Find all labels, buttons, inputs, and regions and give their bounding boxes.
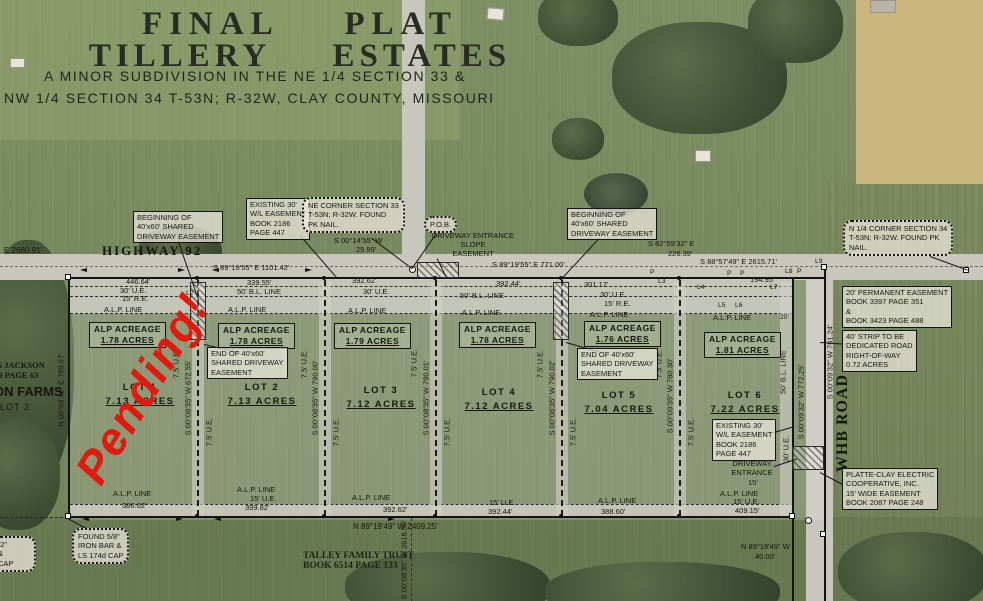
lot5-alp-acres: 1.76 ACRES xyxy=(589,334,656,345)
lot5-label: LOT 5 7.04 ACRES xyxy=(564,389,674,418)
dimension-arrow xyxy=(178,268,185,272)
callout-line: 40' STRIP TO BE xyxy=(846,332,913,341)
top-bearing-2: S 89°19'55" E 771.00' xyxy=(492,261,565,270)
road-strip-bottom-distance: 40.00' xyxy=(755,553,775,562)
alp-line-label: A.L.P. LINE xyxy=(348,307,386,316)
callout-line: DRIVEWAY EASEMENT xyxy=(571,229,653,238)
callout-line: RIGHT-OF-WAY xyxy=(846,351,913,360)
ue75-label: 7.5' U.E. xyxy=(443,418,452,447)
callout-line: EASEMENT xyxy=(581,369,654,378)
line-tag-l7: L7 xyxy=(770,284,778,292)
alp-line-label: A.L.P. LINE xyxy=(598,497,636,506)
alp-line-label: A.L.P. LINE xyxy=(590,311,628,320)
lot4-east-bearing: S 00°08'35" W 790.02' xyxy=(548,361,557,436)
callout-line: SHARED DRIVEWAY xyxy=(581,359,654,368)
found-iron-bar-cloud-partial: /2" & CAP xyxy=(0,536,36,572)
re15-label: 15' R.E. xyxy=(604,300,630,309)
lot3-alp-acreage-box: ALP ACREAGE 1.79 ACRES xyxy=(334,323,411,349)
existing-wl-easement-callout-2: EXISTING 30' W/L EASEMENT BOOK 2186 PAGE… xyxy=(712,419,776,461)
re15-label: 15' R.E. xyxy=(122,295,148,304)
road-strip-west-line xyxy=(792,277,794,601)
top-seg-392a: 392.62' xyxy=(352,277,376,286)
callout-line: LS 174d CAP xyxy=(78,551,123,560)
lot2-name: LOT 2 xyxy=(207,381,317,395)
dim-15ft: 15' xyxy=(748,479,758,488)
house xyxy=(695,150,711,162)
lot6-alp-acres: 1.81 ACRES xyxy=(709,345,776,356)
talley-trust-line1: TALLEY FAMILY TRUST xyxy=(303,551,414,561)
callout-line: & xyxy=(0,549,30,558)
ue75-label: 7.5' U.E. xyxy=(300,350,309,379)
alp-line-label: A.L.P. LINE xyxy=(113,490,151,499)
callout-line: DRIVEWAY EASEMENT xyxy=(137,232,219,241)
existing-wl-easement-callout-1: EXISTING 30' W/L EASEMENT BOOK 2186 PAGE… xyxy=(246,198,310,240)
dimension-arrow xyxy=(80,268,87,272)
ue75-label: 7.5' U.E. xyxy=(410,349,419,378)
lot3-east-bearing: S 00°08'35" W 790.01' xyxy=(422,361,431,436)
lot4-alp-acres: 1.78 ACRES xyxy=(464,335,531,346)
lot6-bottom-distance: 409.15' xyxy=(735,507,759,516)
lot-corner-dot xyxy=(195,276,199,280)
alp-line-label: A.L.P. LINE xyxy=(352,494,390,503)
point-tag-p: P xyxy=(797,268,802,276)
line-tag-l4: L4 xyxy=(697,284,705,292)
callout-line: 0.72 ACRES xyxy=(846,360,913,369)
top-bearing-1: S 89°19'55" E 1101.42' xyxy=(213,264,289,273)
crop-field-top-right xyxy=(856,0,983,184)
adjoiner-farms: ON FARMS xyxy=(0,384,63,399)
callout-line: 40'x60' SHARED xyxy=(571,219,653,228)
beginning-easement-callout-1: BEGINNING OF 40'x60' SHARED DRIVEWAY EAS… xyxy=(133,211,223,243)
lot-corner-dot xyxy=(433,514,437,518)
west-extension-dashed xyxy=(0,517,68,518)
lot3-acres: 7.12 ACRES xyxy=(326,398,436,412)
west-overall-distance: E 2660.91' xyxy=(4,246,42,255)
lot4-bottom-distance: 392.44' xyxy=(488,508,512,517)
lot5-alp-acreage-box: ALP ACREAGE 1.76 ACRES xyxy=(584,321,661,347)
callout-line: BEGINNING OF xyxy=(571,210,653,219)
shared-driveway-easement-hatch xyxy=(553,282,569,340)
ne-corner-cloud: NE CORNER SECTION 33 T-53N; R-32W. FOUND… xyxy=(302,197,405,233)
lot2-alp-acres: 1.78 ACRES xyxy=(223,336,290,347)
line-tag-l3: L3 xyxy=(658,278,666,286)
line-tag-l5: L5 xyxy=(718,302,726,310)
lot-corner-dot xyxy=(433,276,437,280)
permanent-easement-callout: 20' PERMANENT EASEMENT BOOK 3397 PAGE 35… xyxy=(842,286,952,328)
lot2-alp-acreage-box: ALP ACREAGE 1.78 ACRES xyxy=(218,323,295,349)
plat-map-canvas: FINAL PLAT TILLERY ESTATES A MINOR SUBDI… xyxy=(0,0,983,601)
tree-cluster xyxy=(748,0,843,63)
dimension-arrow xyxy=(82,517,89,521)
callout-line: PAGE 447 xyxy=(716,449,772,458)
point-tag-p: P xyxy=(650,269,655,277)
callout-line: END OF 40'x60' xyxy=(581,350,654,359)
callout-line: 40'x60' SHARED xyxy=(137,222,219,231)
ue75-label: 7.5' U.E. xyxy=(205,418,214,447)
lot-corner-dot xyxy=(677,276,681,280)
callout-line: BOOK 2087 PAGE 248 xyxy=(846,498,934,507)
callout-line: FOUND 5/8" xyxy=(78,532,123,541)
alp-line-label: A.L.P. LINE xyxy=(228,306,266,315)
ue30-label: 30' U.E. xyxy=(363,288,389,297)
ue30-vertical-label: 30' U.E. xyxy=(782,436,791,462)
top-bearing-3-distance: 226.39' xyxy=(668,250,692,259)
callout-line: BOOK 3423 PAGE 488 xyxy=(846,316,948,325)
callout-line: BOOK 2186 xyxy=(716,440,772,449)
top-seg-301: 301.17' xyxy=(584,281,608,290)
lot4-acres: 7.12 ACRES xyxy=(444,400,554,414)
corner-marker xyxy=(789,513,795,519)
dimension-arrow xyxy=(388,517,395,521)
lot-corner-dot xyxy=(322,514,326,518)
dimension-arrow xyxy=(214,517,221,521)
highway-92-label: HIGHWAY 92 xyxy=(102,243,202,259)
callout-line: IRON BAR & xyxy=(78,541,123,550)
callout-line: & xyxy=(846,307,948,316)
point-tag-p: P xyxy=(727,270,732,278)
alp-line-label: A.L.P. LINE xyxy=(462,309,500,318)
ue75-label: 7.5' U.E. xyxy=(687,418,696,447)
callout-line: BEGINNING OF xyxy=(137,213,219,222)
callout-line: 15' WIDE EASEMENT xyxy=(846,489,934,498)
corner-marker xyxy=(805,517,812,524)
lot5-name: LOT 5 xyxy=(564,389,674,403)
callout-line: EASEMENT xyxy=(430,250,516,259)
corner-marker xyxy=(65,274,71,280)
lot2-acres: 7.13 ACRES xyxy=(207,395,317,409)
lot3-name: LOT 3 xyxy=(326,384,436,398)
lot4-label: LOT 4 7.12 ACRES xyxy=(444,386,554,415)
lot-corner-dot xyxy=(195,514,199,518)
lot5-acres: 7.04 ACRES xyxy=(564,403,674,417)
lot5-east-bearing: S 00°09'35" W 780.30' xyxy=(666,359,675,434)
callout-line: ENTRANCE xyxy=(728,469,776,478)
driveway-entrance-label: DRIVEWAY ENTRANCE xyxy=(728,460,776,478)
lot3-label: LOT 3 7.12 ACRES xyxy=(326,384,436,413)
callout-line: EXISTING 30' xyxy=(250,200,306,209)
lot5-bottom-distance: 388.60' xyxy=(601,508,625,517)
alp-line-label: A.L.P. LINE xyxy=(104,306,142,315)
bl50-label: 50' B.L. LINE xyxy=(460,292,504,301)
top-bearing-4: S 88°57'49" E 2615.71' xyxy=(700,258,777,267)
callout-line: EASEMENT xyxy=(211,368,284,377)
top-seg-392b: 392.44' xyxy=(496,280,520,289)
alp-acreage-title: ALP ACREAGE xyxy=(339,325,406,336)
bottom-boundary-bearing: N 89°19'49" W 2409.25' xyxy=(353,522,438,531)
lot3-bottom-distance: 392.62' xyxy=(383,506,407,515)
alp-acreage-title: ALP ACREAGE xyxy=(223,325,290,336)
slope-easement-hatch xyxy=(417,262,459,278)
bl50-label: 50' B.L. LINE xyxy=(237,288,281,297)
callout-line: PLATTE-CLAY ELECTRIC xyxy=(846,470,934,479)
alp-acreage-title: ALP ACREAGE xyxy=(464,324,531,335)
platte-clay-easement-callout: PLATTE-CLAY ELECTRIC COOPERATIVE, INC. 1… xyxy=(842,468,938,510)
lot2-east-bearing: S 00°08'35" W 790.00' xyxy=(311,361,320,436)
alp-line-label: A.L.P. LINE xyxy=(713,314,751,323)
lot1-bottom-distance: 386.62' xyxy=(122,502,146,511)
dimension-arrow xyxy=(176,517,183,521)
alp-acreage-title: ALP ACREAGE xyxy=(589,323,656,334)
jog-distance: 29.99' xyxy=(356,246,376,255)
line-tag-l8: L8 xyxy=(785,268,793,276)
pob-label: P.O.B. xyxy=(430,220,451,229)
road-strip-east-line xyxy=(824,266,826,601)
lot6-alp-acreage-box: ALP ACREAGE 1.81 ACRES xyxy=(704,332,781,358)
lot-line-5-6 xyxy=(679,280,681,516)
callout-line: EXISTING 30' xyxy=(716,421,772,430)
lot3-alp-acres: 1.79 ACRES xyxy=(339,336,406,347)
slope-easement-label: DRIVEWAY ENTRANCE SLOPE EASEMENT xyxy=(430,232,516,259)
beginning-easement-callout-2: BEGINNING OF 40'x60' SHARED DRIVEWAY EAS… xyxy=(567,208,657,240)
plat-subtitle-line2: NW 1/4 SECTION 34 T-53N; R-32W, CLAY COU… xyxy=(4,90,495,106)
ue75-label: 7.5' U.E. xyxy=(332,418,341,447)
lot-corner-dot xyxy=(677,514,681,518)
callout-line: T-53N; R-32W. FOUND PK xyxy=(849,233,947,242)
callout-line: PAGE 447 xyxy=(250,228,306,237)
adjoiner-jackson-line1: N JACKSON xyxy=(0,360,45,370)
whb-road-label: WHB ROAD xyxy=(834,374,852,472)
callout-line: 20' PERMANENT EASEMENT xyxy=(846,288,948,297)
lot2-bottom-distance: 399.82' xyxy=(245,504,269,513)
line-tag-l6: L6 xyxy=(735,302,743,310)
found-iron-bar-cloud: FOUND 5/8" IRON BAR & LS 174d CAP xyxy=(72,528,129,564)
lot6-east-bearing: S 00°09'32" W 772.25' xyxy=(797,365,806,440)
bl50-vertical-label: 50' B.L. LINE xyxy=(779,350,788,394)
corner-marker xyxy=(820,531,826,537)
end-easement-callout-lot5: END OF 40'x60' SHARED DRIVEWAY EASEMENT xyxy=(577,348,658,380)
callout-line: N 1/4 CORNER SECTION 34 xyxy=(849,224,947,233)
callout-line: NAIL. xyxy=(849,243,947,252)
adjoiner-jackson-line2: 39 PAGE 63 xyxy=(0,370,38,380)
lot-corner-dot xyxy=(559,514,563,518)
callout-line: END OF 40'x60' xyxy=(211,349,284,358)
house xyxy=(870,0,896,13)
tree-cluster xyxy=(838,532,983,601)
callout-line: T-53N; R-32W. FOUND xyxy=(308,210,399,219)
callout-line: CAP xyxy=(0,559,30,568)
road-strip-callout: 40' STRIP TO BE DEDICATED ROAD RIGHT-OF-… xyxy=(842,330,917,372)
dimension-arrow xyxy=(305,268,312,272)
west-boundary-line xyxy=(68,277,70,518)
callout-line: W/L EASEMENT xyxy=(250,209,306,218)
lot-corner-dot xyxy=(322,276,326,280)
ue75-label: 7.5' U.E. xyxy=(569,418,578,447)
callout-line: COOPERATIVE, INC. xyxy=(846,479,934,488)
alp-acreage-title: ALP ACREAGE xyxy=(709,334,776,345)
talley-trust-line2: BOOK 6514 PAGE 133 xyxy=(303,561,398,571)
road-strip-bottom-bearing: N 89°19'49" W xyxy=(741,543,790,552)
callout-line: DEDICATED ROAD xyxy=(846,341,913,350)
dim-20ft: 20' xyxy=(780,314,789,322)
line-tag-l9: L9 xyxy=(815,258,823,266)
top-bearing-3: S 82°59'32" E xyxy=(648,240,694,249)
callout-line: W/L EASEMENT xyxy=(716,430,772,439)
lot4-alp-acreage-box: ALP ACREAGE 1.78 ACRES xyxy=(459,322,536,348)
lot2-label: LOT 2 7.13 ACRES xyxy=(207,381,317,410)
barn xyxy=(10,58,25,68)
callout-line: BOOK 3397 PAGE 351 xyxy=(846,297,948,306)
lot6-driveway-entrance-hatch xyxy=(792,446,824,470)
point-tag-p: P xyxy=(740,270,745,278)
callout-line: BOOK 2186 xyxy=(250,219,306,228)
callout-line: SHARED DRIVEWAY xyxy=(211,358,284,367)
north-quarter-corner-cloud: N 1/4 CORNER SECTION 34 T-53N; R-32W. FO… xyxy=(843,220,953,256)
lot6-acres: 7.22 ACRES xyxy=(690,403,800,417)
lot1-east-bearing: S 00°08'35" W 672.55' xyxy=(184,361,193,436)
lot4-name: LOT 4 xyxy=(444,386,554,400)
end-easement-callout-lot2: END OF 40'x60' SHARED DRIVEWAY EASEMENT xyxy=(207,347,288,379)
east-road-bearing: S 00°09'32" W 761.24' xyxy=(826,325,835,400)
ue75-label: 7.5' U.E. xyxy=(536,350,545,379)
callout-line: NE CORNER SECTION 33 xyxy=(308,201,399,210)
adjoiner-farms-lot: LOT 3 xyxy=(0,402,30,413)
tree-cluster xyxy=(552,118,604,160)
callout-line: PK NAIL. xyxy=(308,220,399,229)
plat-subtitle-line1: A MINOR SUBDIVISION IN THE NE 1/4 SECTIO… xyxy=(44,68,466,84)
callout-line: /2" xyxy=(0,540,30,549)
